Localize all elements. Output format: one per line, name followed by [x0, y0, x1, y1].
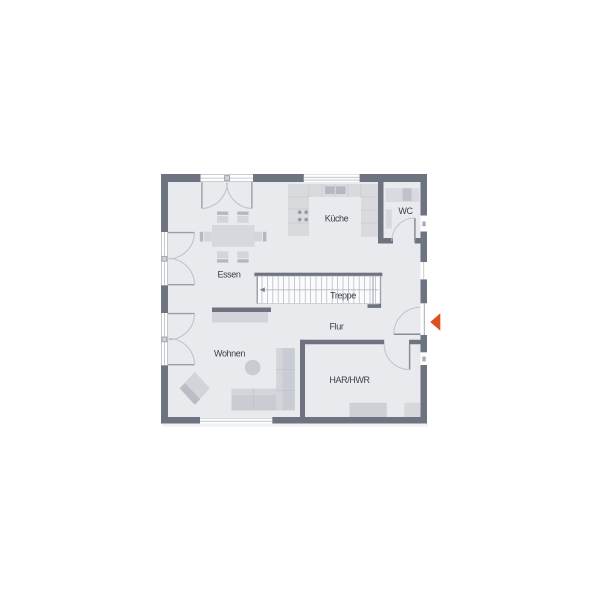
svg-text:Küche: Küche	[325, 214, 349, 224]
svg-text:Wohnen: Wohnen	[214, 349, 245, 359]
svg-text:Essen: Essen	[217, 270, 240, 280]
svg-text:HAR/HWR: HAR/HWR	[329, 375, 370, 385]
svg-text:Treppe: Treppe	[330, 291, 356, 301]
svg-text:Flur: Flur	[330, 322, 344, 332]
svg-text:WC: WC	[398, 206, 413, 216]
